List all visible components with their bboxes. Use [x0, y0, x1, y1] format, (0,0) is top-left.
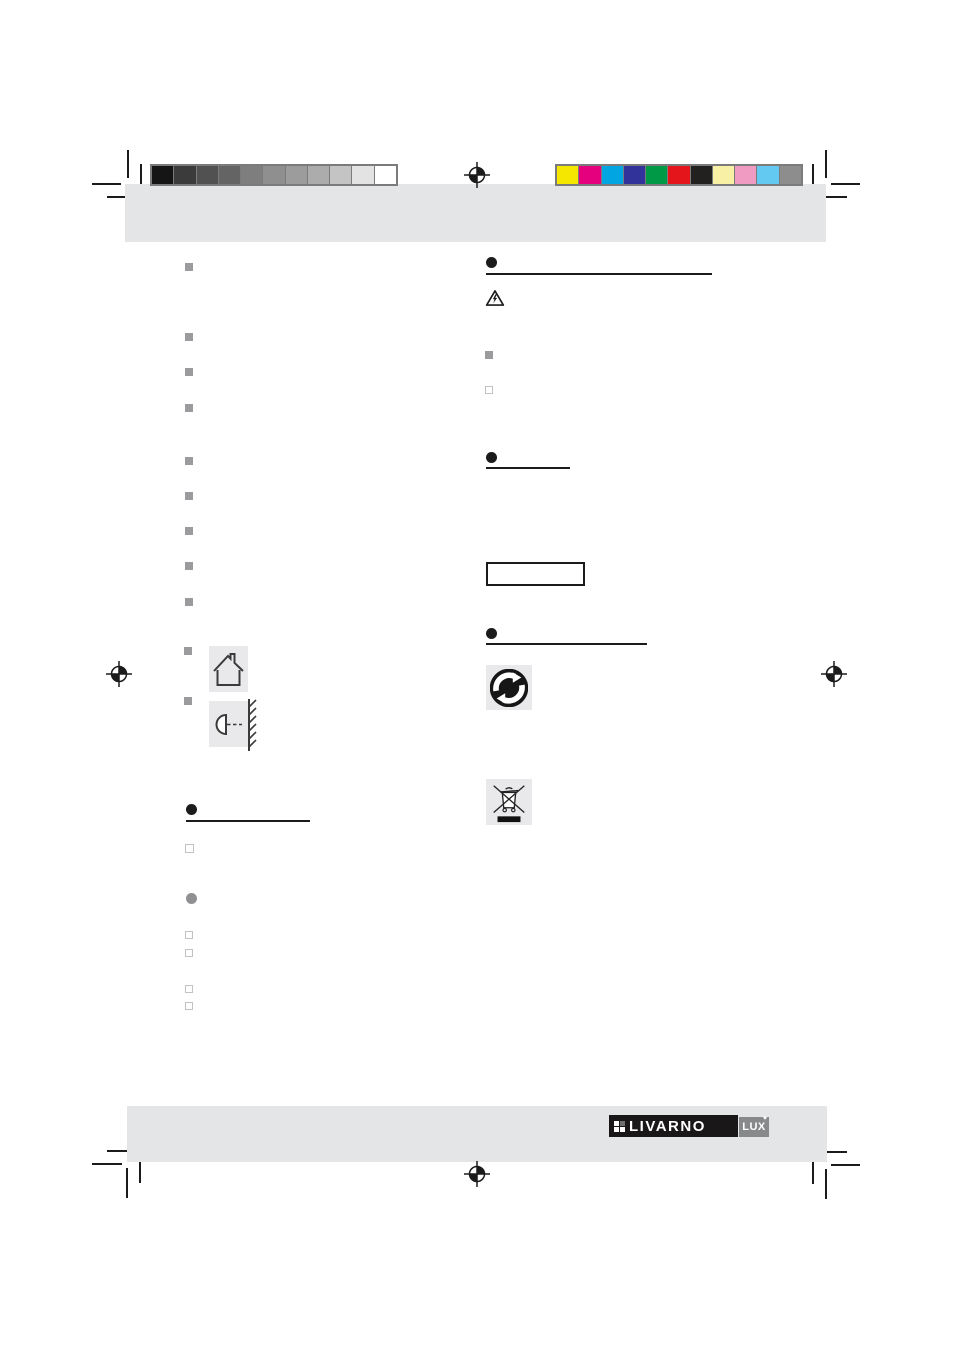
livarno-logo: LIVARNO [609, 1115, 738, 1137]
color-swatch [286, 166, 307, 184]
color-swatch [624, 166, 645, 184]
list-bullet [185, 562, 193, 570]
lux-logo-badge: LUX ✦ [739, 1117, 769, 1137]
registration-mark-icon [464, 162, 490, 188]
color-swatch [602, 166, 623, 184]
color-swatch [375, 166, 396, 184]
green-dot-recycling-icon [486, 665, 532, 710]
electrical-hazard-warning-icon [485, 289, 505, 307]
wall-mounted-lamp-icon [209, 699, 257, 751]
grayscale-calibration-bar [150, 164, 398, 186]
lux-label: LUX [742, 1121, 766, 1133]
logo-wordmark: LIVARNO [629, 1119, 706, 1134]
color-swatch [174, 166, 195, 184]
section-heading-rule [186, 820, 310, 822]
crop-mark [127, 150, 129, 178]
color-swatch [780, 166, 801, 184]
list-bullet-hollow [485, 386, 493, 394]
section-bullet [186, 893, 197, 904]
color-swatch [197, 166, 218, 184]
list-bullet [185, 598, 193, 606]
house-indoor-use-icon [209, 646, 248, 692]
list-bullet [184, 647, 192, 655]
crop-mark [825, 1169, 827, 1199]
list-bullet [185, 368, 193, 376]
list-bullet [185, 492, 193, 500]
list-bullet [485, 351, 493, 359]
list-bullet-hollow [185, 931, 193, 939]
color-swatch [219, 166, 240, 184]
list-bullet [185, 333, 193, 341]
section-bullet [186, 804, 197, 815]
color-swatch [713, 166, 734, 184]
color-swatch [757, 166, 778, 184]
list-bullet [185, 263, 193, 271]
crop-mark [92, 1163, 122, 1165]
list-bullet-hollow [185, 1002, 193, 1010]
crop-mark [831, 183, 860, 185]
registration-mark-icon [464, 1161, 490, 1187]
crop-mark [812, 1160, 814, 1184]
section-heading-rule [486, 643, 647, 645]
model-number-box [486, 562, 585, 586]
color-swatch [352, 166, 373, 184]
window-panes-icon [614, 1121, 625, 1132]
list-bullet [185, 527, 193, 535]
list-bullet-hollow [185, 985, 193, 993]
crop-mark [139, 1159, 141, 1183]
color-swatch [241, 166, 262, 184]
color-swatch [735, 166, 756, 184]
crop-mark [823, 196, 847, 198]
section-bullet [486, 628, 497, 639]
registration-mark-icon [106, 661, 132, 687]
color-swatch [152, 166, 173, 184]
color-swatch [579, 166, 600, 184]
color-swatch [330, 166, 351, 184]
section-bullet [486, 257, 497, 268]
color-swatch [668, 166, 689, 184]
list-bullet [184, 697, 192, 705]
color-calibration-bar [555, 164, 803, 186]
list-bullet-hollow [185, 844, 194, 853]
crop-mark [831, 1164, 860, 1166]
crop-mark [825, 150, 827, 178]
color-swatch [557, 166, 578, 184]
manual-page: LIVARNO LUX ✦ [0, 0, 954, 1350]
crossed-out-wheelie-bin-icon [486, 779, 532, 825]
list-bullet [185, 457, 193, 465]
color-swatch [263, 166, 284, 184]
star-icon: ✦ [762, 1116, 768, 1122]
registration-mark-icon [821, 661, 847, 687]
section-heading-rule [486, 273, 712, 275]
section-heading-rule [486, 467, 570, 469]
section-bullet [486, 452, 497, 463]
crop-mark [92, 183, 121, 185]
list-bullet-hollow [185, 949, 193, 957]
color-swatch [691, 166, 712, 184]
color-swatch [308, 166, 329, 184]
crop-mark [126, 1168, 128, 1198]
list-bullet [185, 404, 193, 412]
color-swatch [646, 166, 667, 184]
header-band [125, 184, 826, 242]
